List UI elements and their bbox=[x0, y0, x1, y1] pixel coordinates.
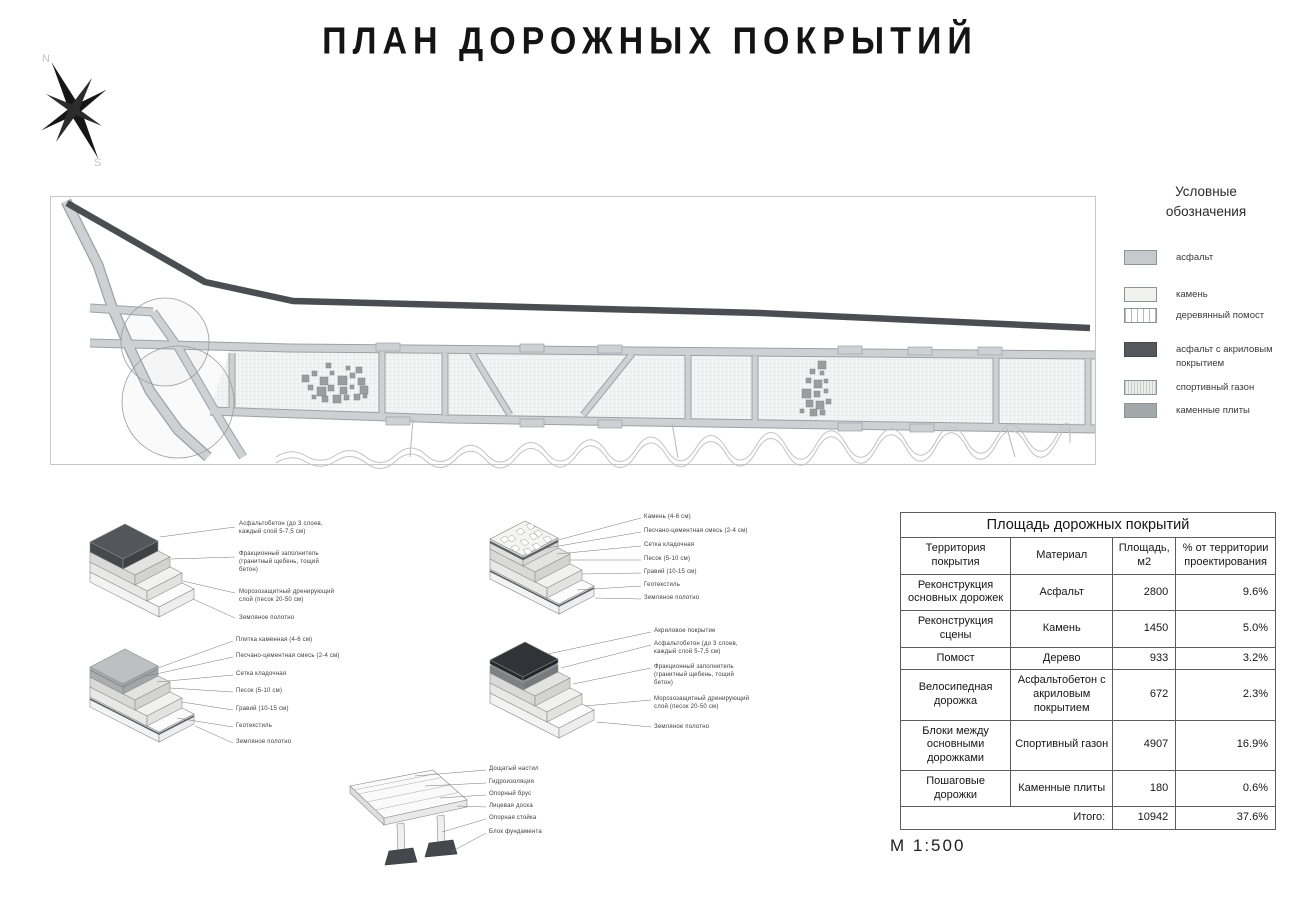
wood-deck-swatch bbox=[1124, 308, 1157, 323]
layer-label: Сетка кладочная bbox=[644, 542, 784, 550]
legend-title-line2: обозначения bbox=[1118, 202, 1294, 222]
table-row: Пошаговые дорожки Каменные плиты 180 0.6… bbox=[901, 770, 1276, 807]
compass-south-label: S bbox=[94, 157, 101, 169]
layer-label: Фракционный заполнитель (гранитный щебен… bbox=[654, 664, 754, 687]
drawing-sheet: { "title": "ПЛАН ДОРОЖНЫХ ПОКРЫТИЙ", "sc… bbox=[0, 0, 1300, 918]
total-area: 10942 bbox=[1113, 807, 1176, 830]
compass-star-icon: N S bbox=[28, 50, 128, 170]
layer-label: Блок фундамента bbox=[489, 829, 567, 837]
areas-table: Площадь дорожных покрытий Территория пок… bbox=[900, 512, 1276, 830]
layer-label: Лицевая доска bbox=[489, 803, 567, 811]
table-title: Площадь дорожных покрытий bbox=[901, 513, 1276, 538]
cell-material: Каменные плиты bbox=[1011, 770, 1113, 807]
col-header-material: Материал bbox=[1011, 538, 1113, 575]
layer-label: Дощатый настил bbox=[489, 766, 567, 774]
stone-plates-swatch bbox=[1124, 403, 1157, 418]
legend-item-label: асфальт bbox=[1176, 251, 1288, 265]
layer-label: Плитка каменная (4-6 см) bbox=[236, 637, 371, 645]
detail-stone-plate-section: Плитка каменная (4-6 см) Песчано-цементн… bbox=[85, 630, 375, 755]
legend: Условные обозначения асфальт камень дере… bbox=[1118, 182, 1294, 432]
cell-area: 933 bbox=[1113, 647, 1176, 670]
cell-material: Асфальтобетон с акриловым покрытием bbox=[1011, 670, 1113, 720]
layer-label: Камень (4-6 см) bbox=[644, 514, 784, 522]
cell-material: Камень bbox=[1011, 611, 1113, 648]
table-row: Реконструкция сцены Камень 1450 5.0% bbox=[901, 611, 1276, 648]
cell-territory: Реконструкция основных дорожек bbox=[901, 574, 1011, 611]
cell-material: Спортивный газон bbox=[1011, 720, 1113, 770]
compass-rose: N S bbox=[28, 50, 128, 170]
layer-label: Сетка кладочная bbox=[236, 671, 371, 679]
layer-label: Гравий (10-15 см) bbox=[236, 706, 371, 714]
layer-label: Земляное полотно bbox=[644, 595, 784, 603]
layer-label: Гидроизоляция bbox=[489, 779, 567, 787]
legend-item-label: спортивный газон bbox=[1176, 381, 1288, 395]
layer-label: Песок (5-10 см) bbox=[236, 688, 371, 696]
detail-acrylic-section: Акриловое покрытие Асфальтобетон (до 3 с… bbox=[485, 626, 800, 748]
table-row: Велосипедная дорожка Асфальтобетон с акр… bbox=[901, 670, 1276, 720]
legend-title-line1: Условные bbox=[1118, 182, 1294, 202]
col-header-area: Площадь, м2 bbox=[1113, 538, 1176, 575]
cell-percent: 9.6% bbox=[1176, 574, 1276, 611]
page-title: ПЛАН ДОРОЖНЫХ ПОКРЫТИЙ bbox=[0, 20, 1300, 64]
layer-label: Геотекстиль bbox=[236, 723, 371, 731]
table-row: Помост Дерево 933 3.2% bbox=[901, 647, 1276, 670]
layer-label: Асфальтобетон (до 3 слоев, каждый слой 5… bbox=[654, 641, 759, 657]
layer-label: Опорный брус bbox=[489, 791, 567, 799]
layer-label: Земляное полотно bbox=[239, 615, 349, 623]
col-header-territory: Территория покрытия bbox=[901, 538, 1011, 575]
detail-wood-deck-section: Дощатый настил Гидроизоляция Опорный бру… bbox=[345, 760, 570, 870]
cell-area: 2800 bbox=[1113, 574, 1176, 611]
legend-item-label: камень bbox=[1176, 288, 1288, 302]
stone-swatch bbox=[1124, 287, 1157, 302]
sport-lawn-swatch bbox=[1124, 380, 1157, 395]
cell-area: 1450 bbox=[1113, 611, 1176, 648]
legend-item-label: асфальт с акриловым покрытием bbox=[1176, 343, 1288, 372]
col-header-percent: % от территории проектирования bbox=[1176, 538, 1276, 575]
layer-label: Морозозащитный дренирующий слой (песок 2… bbox=[654, 696, 759, 712]
cell-percent: 2.3% bbox=[1176, 670, 1276, 720]
detail-asphalt-section: Асфальтобетон (до 3 слоев, каждый слой 5… bbox=[85, 505, 375, 640]
cell-territory: Велосипедная дорожка bbox=[901, 670, 1011, 720]
shoreline bbox=[276, 419, 1070, 469]
table-total-row: Итого: 10942 37.6% bbox=[901, 807, 1276, 830]
table-row: Блоки между основными дорожками Спортивн… bbox=[901, 720, 1276, 770]
layer-label: Земляное полотно bbox=[654, 724, 764, 732]
layer-label: Акриловое покрытие bbox=[654, 628, 784, 636]
legend-item-label: деревянный помост bbox=[1176, 309, 1288, 323]
layer-label: Геотекстиль bbox=[644, 582, 784, 590]
total-label: Итого: bbox=[901, 807, 1113, 830]
cell-territory: Блоки между основными дорожками bbox=[901, 720, 1011, 770]
layer-label: Песок (5-10 см) bbox=[644, 556, 784, 564]
site-plan-drawing bbox=[50, 195, 1100, 470]
layer-label: Гравий (10-15 см) bbox=[644, 569, 784, 577]
legend-item-label: каменные плиты bbox=[1176, 404, 1288, 418]
scale-label: М 1:500 bbox=[890, 836, 965, 856]
layer-label: Морозозащитный дренирующий слой (песок 2… bbox=[239, 589, 344, 605]
cell-percent: 0.6% bbox=[1176, 770, 1276, 807]
layer-label: Песчано-цементная смесь (2-4 см) bbox=[644, 528, 784, 536]
cell-area: 180 bbox=[1113, 770, 1176, 807]
acrylic-asphalt-swatch bbox=[1124, 342, 1157, 357]
layer-label: Фракционный заполнитель (гранитный щебен… bbox=[239, 551, 339, 574]
table-row: Реконструкция основных дорожек Асфальт 2… bbox=[901, 574, 1276, 611]
cell-percent: 3.2% bbox=[1176, 647, 1276, 670]
detail-stone-section: Камень (4-6 см) Песчано-цементная смесь … bbox=[485, 502, 790, 632]
cell-material: Асфальт bbox=[1011, 574, 1113, 611]
cell-territory: Помост bbox=[901, 647, 1011, 670]
total-percent: 37.6% bbox=[1176, 807, 1276, 830]
cell-area: 4907 bbox=[1113, 720, 1176, 770]
layer-label: Асфальтобетон (до 3 слоев, каждый слой 5… bbox=[239, 521, 344, 537]
layer-label: Опорная стойка bbox=[489, 815, 567, 823]
cell-percent: 5.0% bbox=[1176, 611, 1276, 648]
layer-label: Земляное полотно bbox=[236, 739, 371, 747]
legend-title: Условные обозначения bbox=[1118, 182, 1294, 221]
compass-north-label: N bbox=[42, 53, 50, 65]
layer-label: Песчано-цементная смесь (2-4 см) bbox=[236, 653, 371, 661]
cell-territory: Пошаговые дорожки bbox=[901, 770, 1011, 807]
site-plan bbox=[50, 195, 1100, 470]
cell-percent: 16.9% bbox=[1176, 720, 1276, 770]
cell-material: Дерево bbox=[1011, 647, 1113, 670]
cell-territory: Реконструкция сцены bbox=[901, 611, 1011, 648]
areas-table-wrap: Площадь дорожных покрытий Территория пок… bbox=[900, 512, 1276, 830]
cell-area: 672 bbox=[1113, 670, 1176, 720]
bike-path bbox=[67, 203, 1090, 328]
asphalt-swatch bbox=[1124, 250, 1157, 265]
